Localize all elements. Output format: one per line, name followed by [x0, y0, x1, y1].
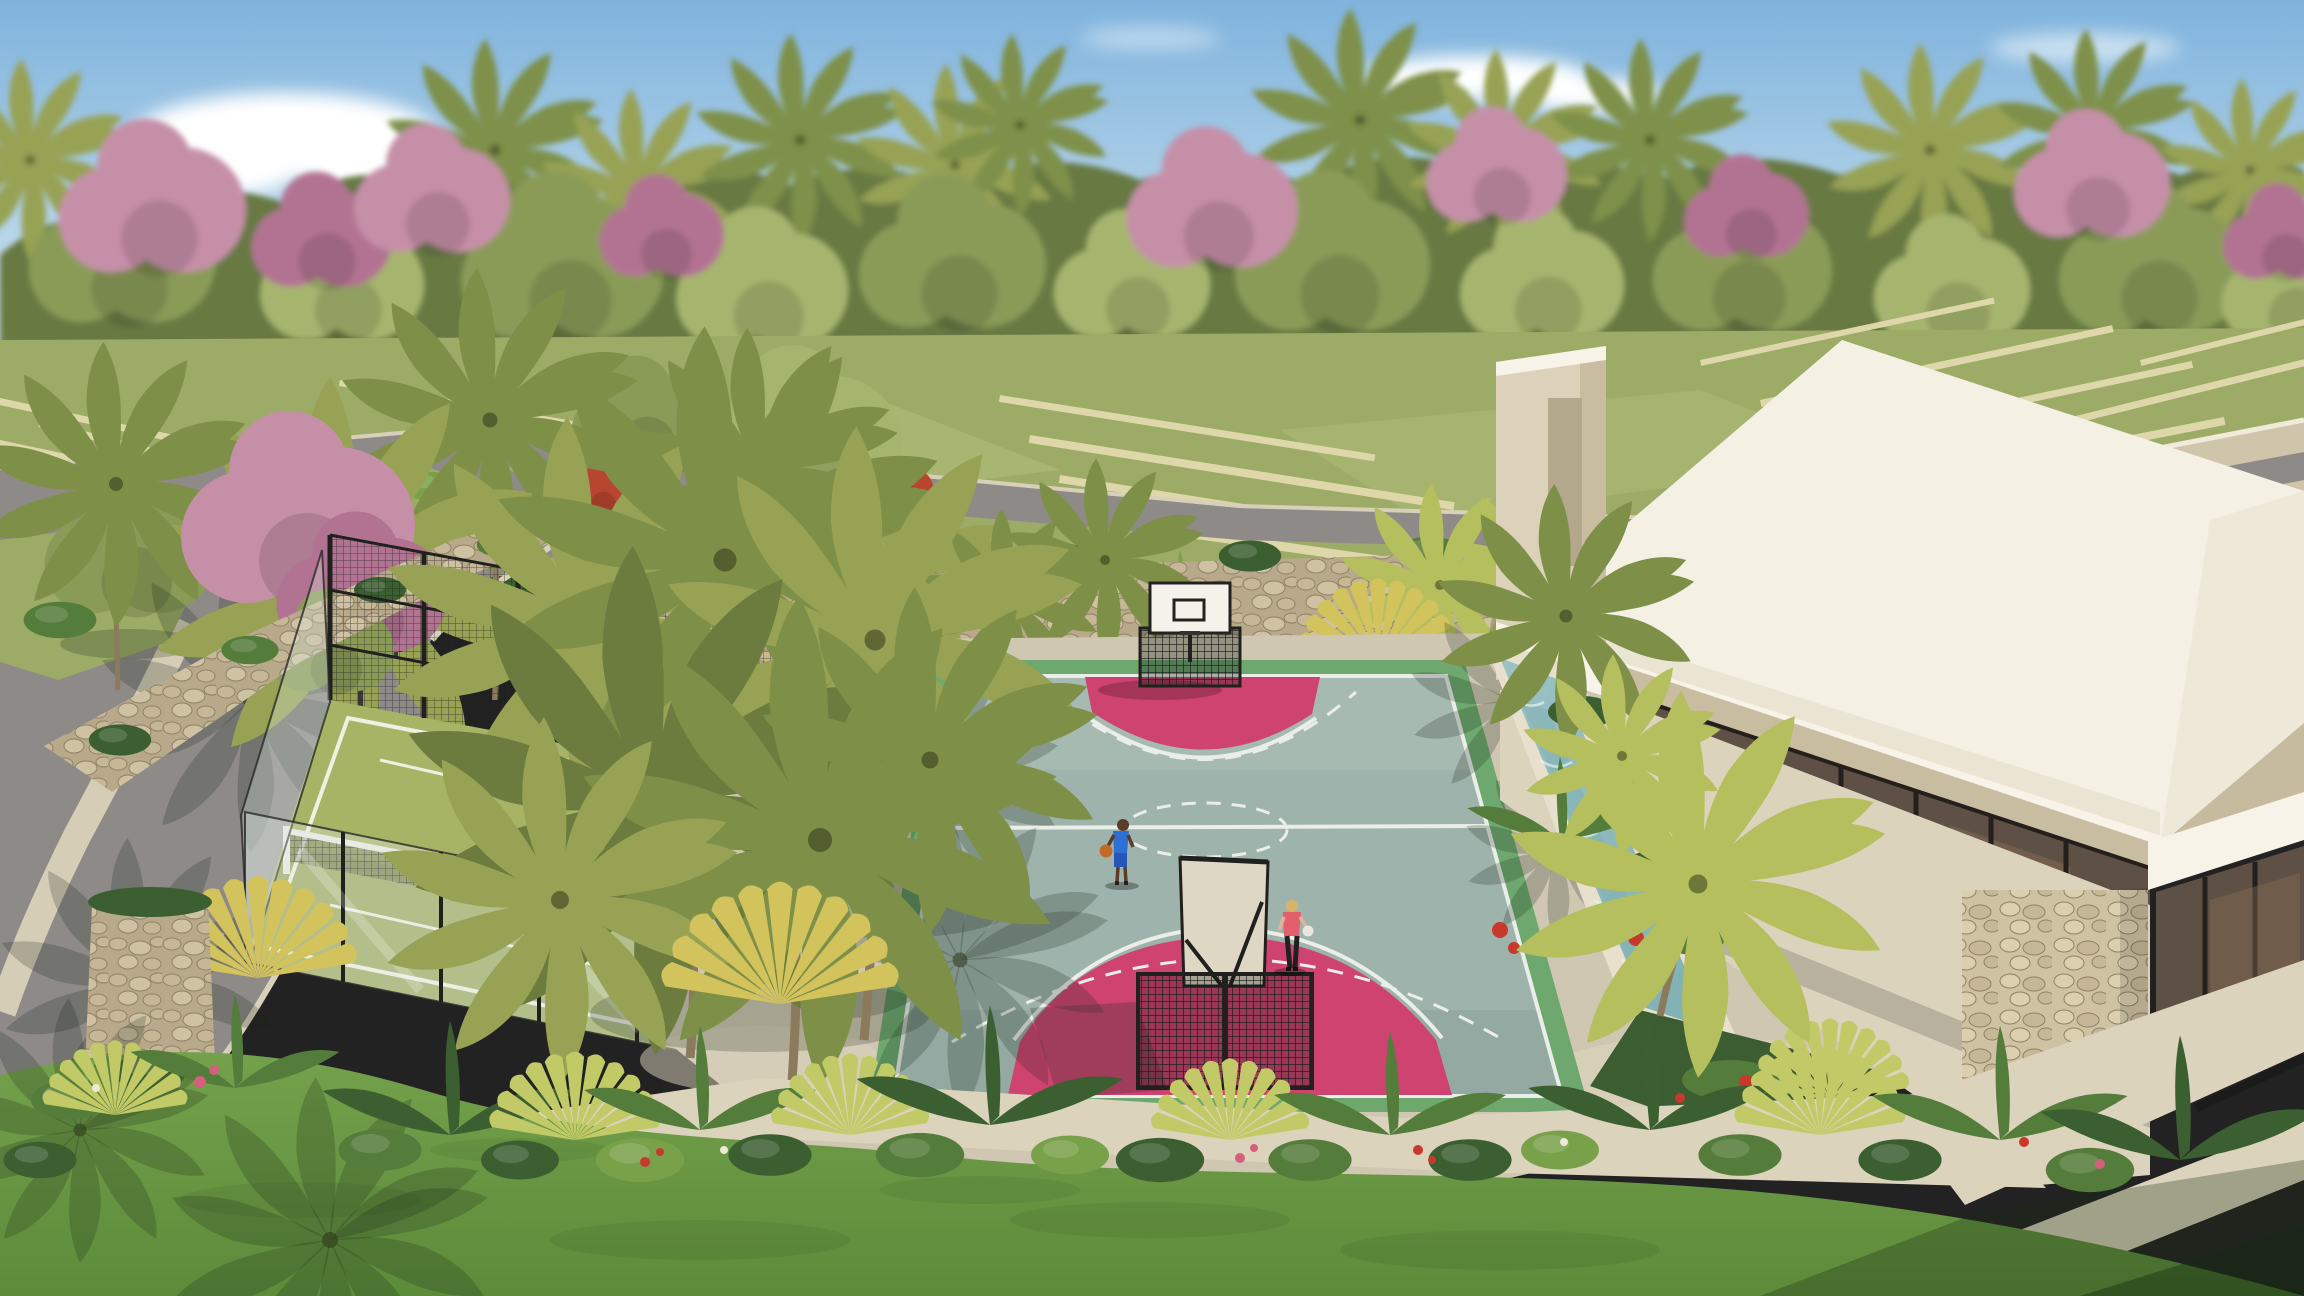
- backboard: [1150, 583, 1230, 633]
- center-line: [935, 826, 1488, 828]
- ivy: [1219, 540, 1281, 571]
- aerial-render: Aerial 3D render - residential community…: [0, 0, 2304, 1296]
- ball: [1303, 926, 1314, 937]
- player-shadow: [1105, 882, 1139, 890]
- top: [1283, 912, 1301, 936]
- head: [1286, 900, 1298, 912]
- shorts: [1114, 853, 1127, 867]
- cloud: [1080, 27, 1220, 49]
- bush: [24, 602, 97, 638]
- ivy: [88, 887, 212, 917]
- render-stage: Aerial 3D render - residential community…: [0, 0, 2304, 1296]
- shirt: [1113, 831, 1129, 853]
- ivy: [89, 724, 151, 755]
- head: [1117, 819, 1129, 831]
- basketball: [1100, 845, 1113, 858]
- ivy: [221, 636, 278, 665]
